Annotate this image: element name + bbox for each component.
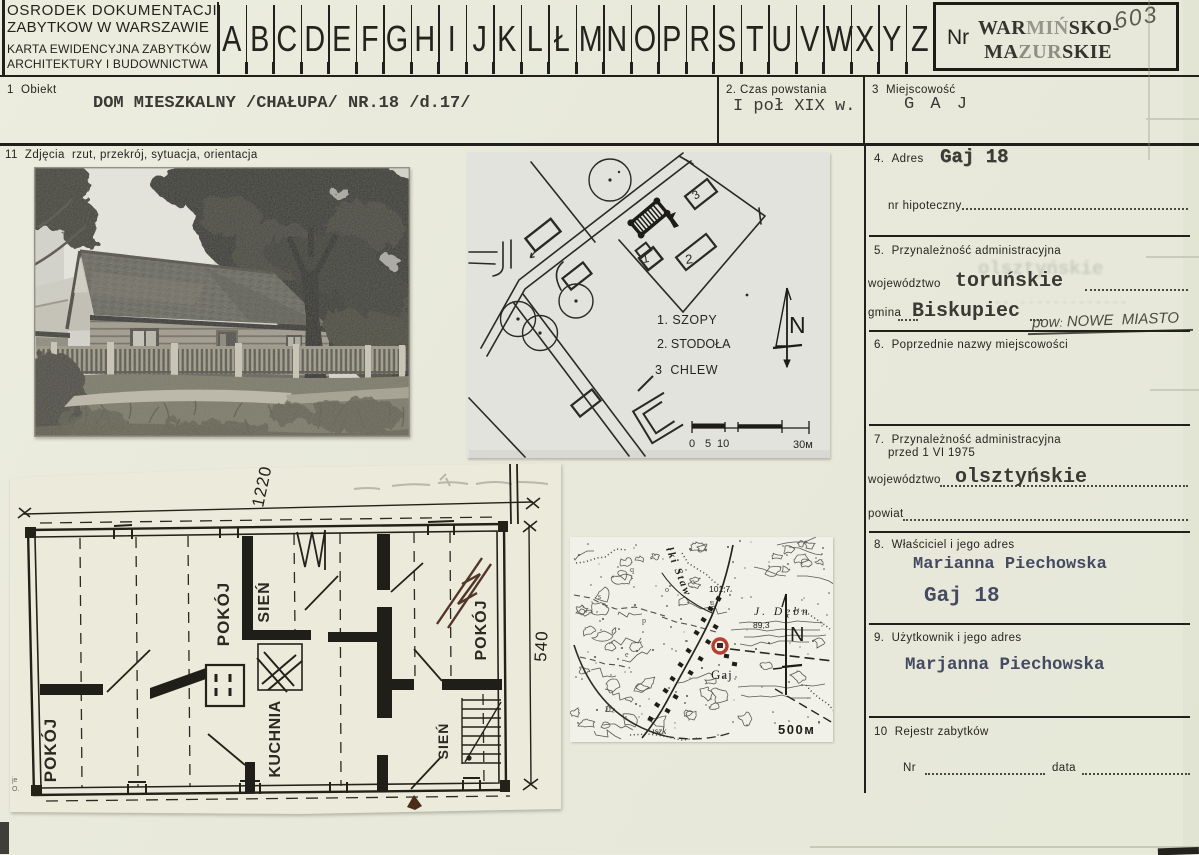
svg-text:30м: 30м	[793, 439, 813, 451]
svg-text:u: u	[710, 598, 714, 607]
svg-text:Gaj: Gaj	[711, 667, 733, 682]
svg-text:q: q	[630, 565, 634, 574]
svg-text:POKÓJ: POKÓJ	[41, 718, 60, 783]
svg-text:101,7: 101,7	[709, 584, 731, 594]
svg-text:SIEŃ: SIEŃ	[254, 581, 273, 622]
svg-text:J. Dębn: J. Dębn	[754, 606, 811, 618]
svg-text:POKÓJ: POKÓJ	[471, 599, 490, 660]
svg-text:e: e	[625, 650, 629, 659]
svg-text:89,3: 89,3	[753, 620, 770, 630]
svg-text:500м: 500м	[778, 722, 815, 737]
svg-text:10: 10	[717, 438, 729, 450]
svg-text:3 CHLEW: 3 CHLEW	[655, 363, 718, 377]
svg-text:s: s	[598, 592, 601, 601]
svg-text:5: 5	[705, 438, 711, 450]
svg-text:ıszk: ıszk	[652, 727, 667, 737]
svg-text:o: o	[665, 585, 669, 594]
svg-text:p: p	[642, 616, 646, 625]
svg-text:540: 540	[531, 630, 552, 662]
svg-text:KUCHNIA: KUCHNIA	[267, 700, 284, 777]
svg-text:1. SZOPY: 1. SZOPY	[657, 313, 717, 327]
svg-text:O.: O.	[12, 786, 19, 793]
svg-text:POKÓJ: POKÓJ	[214, 582, 233, 647]
svg-text:N: N	[790, 624, 804, 646]
svg-text:je: je	[11, 777, 18, 784]
svg-text:0: 0	[689, 438, 695, 450]
svg-text:SIEŃ: SIEŃ	[435, 723, 451, 760]
svg-text:2. STODOŁA: 2. STODOŁA	[657, 337, 731, 351]
svg-text:N: N	[789, 312, 806, 338]
